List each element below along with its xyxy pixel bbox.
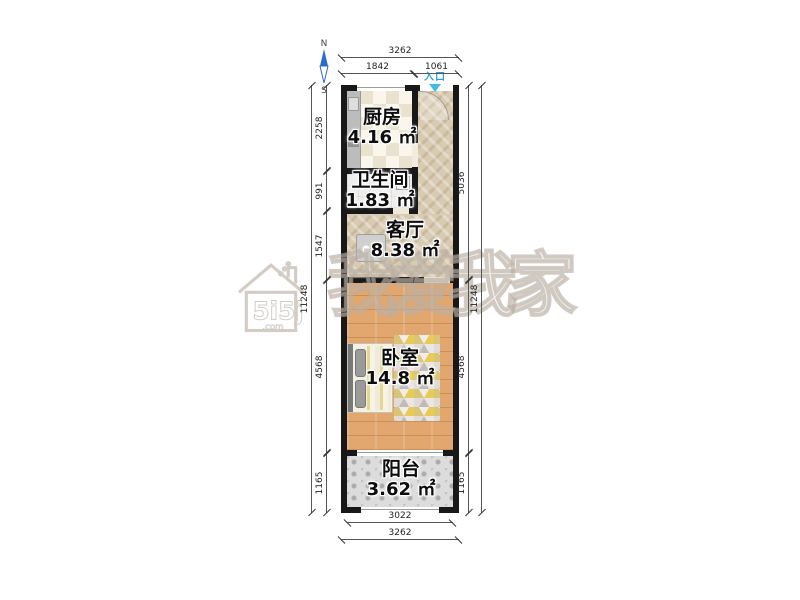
dim-label: 11248 xyxy=(470,285,480,314)
dim-bottom-outer: 3262 xyxy=(341,539,459,540)
kitchen-name: 厨房 xyxy=(344,107,420,128)
dim-label: 3262 xyxy=(389,46,412,56)
dim-label: 3022 xyxy=(389,511,412,521)
dim-label: 4568 xyxy=(457,355,467,378)
bed-headboard xyxy=(348,344,353,412)
dim-label: 1061 xyxy=(425,62,448,72)
room-label-balcony: 阳台 3.62 ㎡ xyxy=(358,459,444,500)
dim-label: 4568 xyxy=(315,355,325,378)
entrance-arrow-icon xyxy=(429,84,441,92)
balcony-sliding-window xyxy=(357,450,443,456)
kitchen-area: 4.16 ㎡ xyxy=(344,128,420,148)
bedroom-name: 卧室 xyxy=(355,348,445,369)
bathroom-area: 1.83 ㎡ xyxy=(340,191,420,211)
living-area: 8.38 ㎡ xyxy=(360,241,450,261)
compass-needle-icon xyxy=(317,49,331,83)
dim-label: 5036 xyxy=(457,171,467,194)
dim-label: 11248 xyxy=(300,285,310,314)
dim-bottom-inner: 3022 xyxy=(347,522,453,523)
dim-label: 1547 xyxy=(315,234,325,257)
balcony-area: 3.62 ㎡ xyxy=(358,480,444,500)
agency-house-logo-icon: 5i5j .com xyxy=(234,252,308,344)
kitchen-window xyxy=(357,85,405,91)
bedroom-area: 14.8 ㎡ xyxy=(355,369,445,389)
compass-north-label: N xyxy=(314,40,334,49)
dim-label: 3262 xyxy=(389,528,412,538)
floorplan-canvas: N S 入口 xyxy=(0,0,800,600)
dim-right-total: 11248 xyxy=(481,85,482,513)
agency-logo-text: 5i5j xyxy=(253,296,304,325)
dim-left-seg-5: 1165 xyxy=(326,453,327,513)
dim-label: 1842 xyxy=(366,62,389,72)
dim-left-seg-3: 1547 xyxy=(326,211,327,280)
dim-label: 991 xyxy=(315,182,325,199)
room-label-bathroom: 卫生间 1.83 ㎡ xyxy=(340,170,420,211)
dim-left-total: 11248 xyxy=(311,85,312,513)
room-label-kitchen: 厨房 4.16 ㎡ xyxy=(344,107,420,148)
agency-logo-suffix: .com xyxy=(262,322,283,332)
dim-right-seg-1: 5036 xyxy=(468,85,469,280)
dim-top-total: 3262 xyxy=(341,57,459,58)
room-label-bedroom: 卧室 14.8 ㎡ xyxy=(355,348,445,389)
dim-label: 2258 xyxy=(315,117,325,140)
dim-label: 1165 xyxy=(457,472,467,495)
dim-left-seg-2: 991 xyxy=(326,171,327,211)
dim-top-seg-1: 1842 xyxy=(341,73,414,74)
dim-left-seg-4: 4568 xyxy=(326,280,327,453)
living-name: 客厅 xyxy=(360,220,450,241)
room-label-living: 客厅 8.38 ㎡ xyxy=(360,220,450,261)
balcony-name: 阳台 xyxy=(358,459,444,480)
dim-left-seg-1: 2258 xyxy=(326,85,327,171)
dim-label: 1165 xyxy=(315,472,325,495)
bathroom-name: 卫生间 xyxy=(340,170,420,191)
dim-right-seg-3: 1165 xyxy=(468,453,469,513)
dim-top-seg-2: 1061 xyxy=(414,73,459,74)
dim-right-seg-2: 4568 xyxy=(468,280,469,453)
